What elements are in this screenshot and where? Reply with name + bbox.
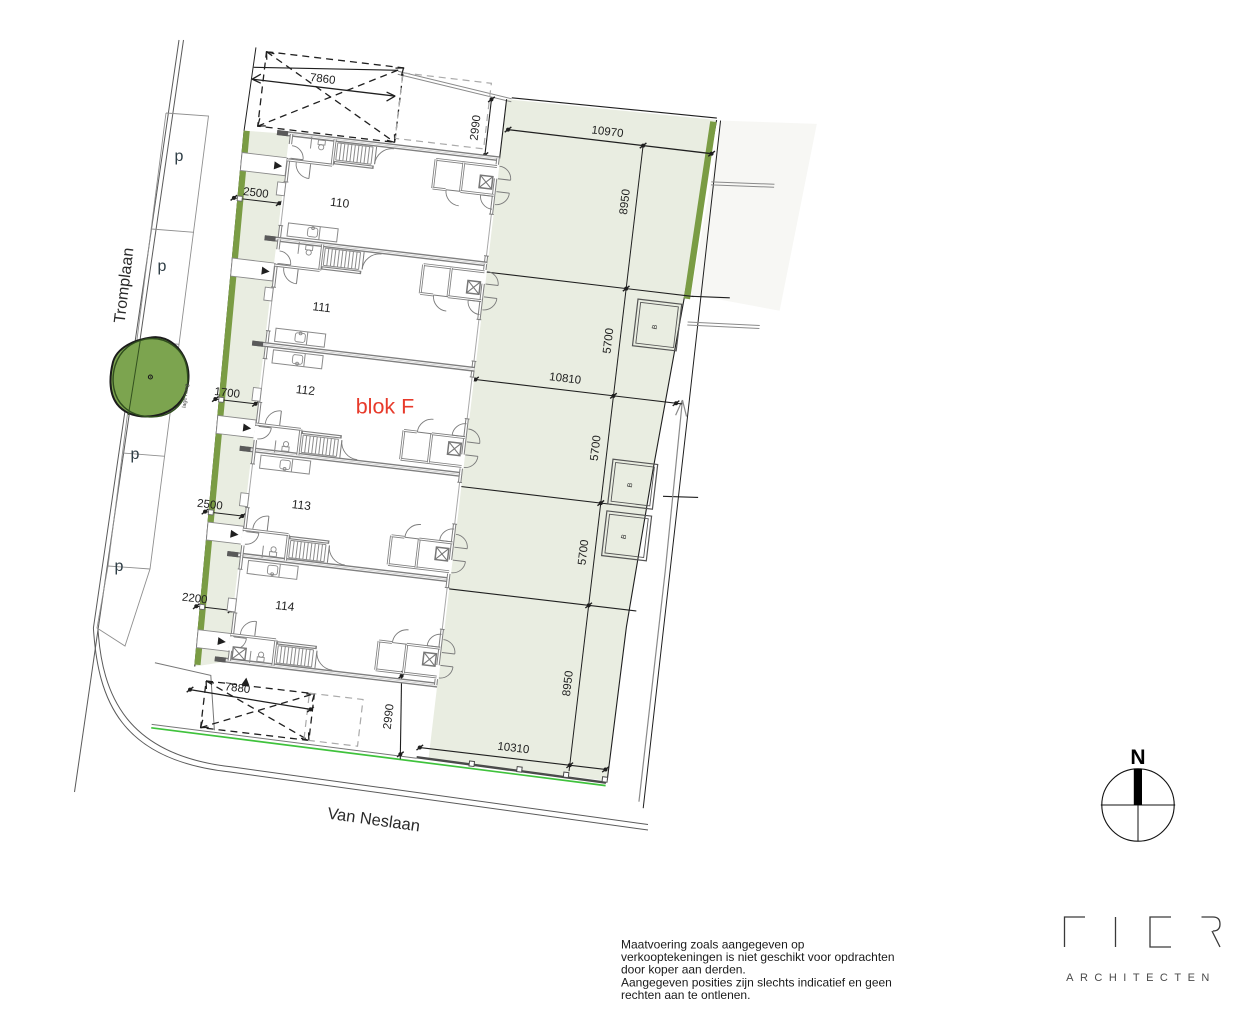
svg-text:112: 112 — [295, 382, 316, 398]
svg-text:p: p — [175, 148, 184, 165]
svg-text:p: p — [115, 558, 124, 575]
svg-text:N: N — [1130, 746, 1145, 769]
svg-text:rechten aan te ontlenen.: rechten aan te ontlenen. — [621, 988, 750, 1002]
svg-text:110: 110 — [329, 195, 350, 211]
svg-text:113: 113 — [291, 497, 312, 513]
svg-text:p: p — [158, 258, 167, 275]
svg-text:111: 111 — [312, 299, 332, 315]
svg-text:p: p — [131, 446, 140, 463]
svg-text:114: 114 — [275, 598, 296, 614]
svg-text:blok F: blok F — [356, 395, 415, 419]
svg-text:ARCHITECTEN: ARCHITECTEN — [1066, 972, 1216, 984]
